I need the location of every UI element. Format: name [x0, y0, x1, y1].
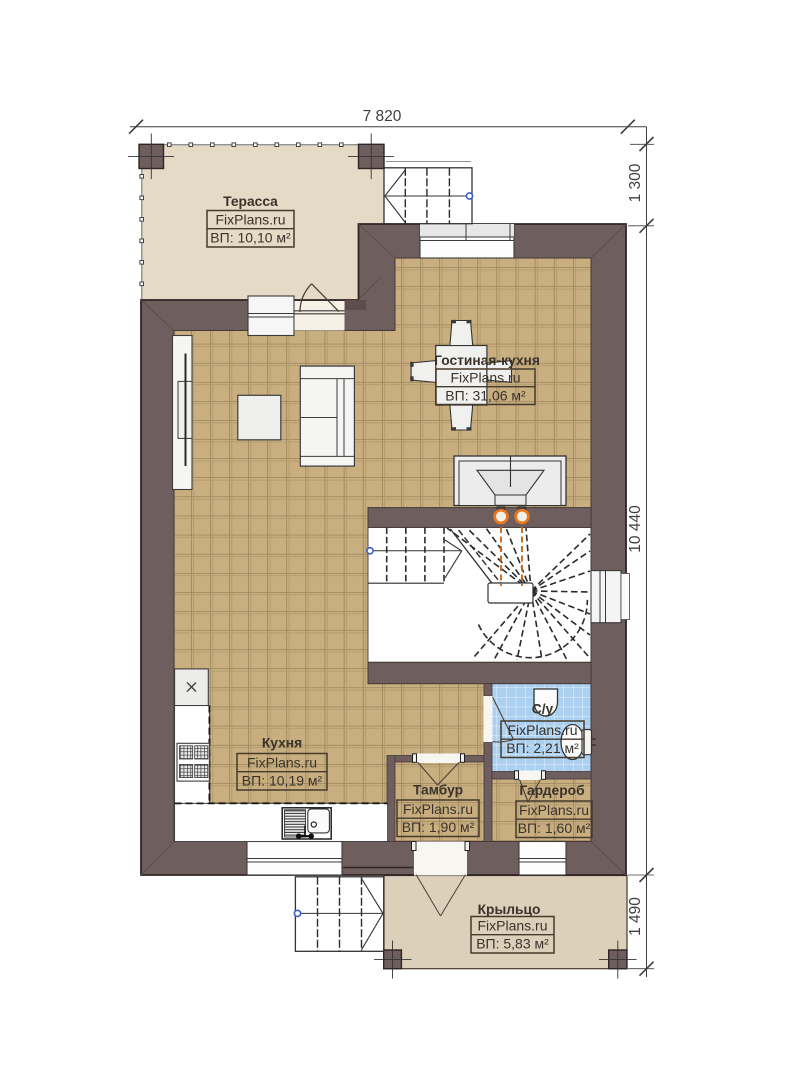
svg-text:Крыльцо: Крыльцо [478, 902, 541, 917]
svg-text:1 300: 1 300 [627, 163, 644, 202]
svg-text:FixPlans.ru: FixPlans.ru [450, 370, 520, 386]
svg-text:FixPlans.ru: FixPlans.ru [247, 755, 317, 771]
svg-text:Кухня: Кухня [262, 736, 302, 751]
svg-text:ВП: 2,21 м²: ВП: 2,21 м² [506, 740, 579, 756]
svg-text:FixPlans.ru: FixPlans.ru [519, 802, 589, 818]
svg-text:Гардероб: Гардероб [519, 783, 584, 798]
svg-text:1 490: 1 490 [627, 897, 644, 936]
svg-text:ВП: 5,83 м²: ВП: 5,83 м² [476, 936, 549, 952]
svg-text:ВП: 10,19 м²: ВП: 10,19 м² [242, 773, 323, 789]
svg-text:С/у: С/у [532, 702, 554, 717]
svg-text:ВП: 1,60 м²: ВП: 1,60 м² [518, 820, 591, 836]
svg-text:FixPlans.ru: FixPlans.ru [507, 722, 577, 738]
svg-text:ВП: 31,06 м²: ВП: 31,06 м² [445, 388, 526, 404]
svg-text:FixPlans.ru: FixPlans.ru [215, 212, 285, 228]
svg-text:7 820: 7 820 [363, 108, 402, 125]
svg-text:10 440: 10 440 [627, 505, 644, 553]
svg-text:ВП: 10,10 м²: ВП: 10,10 м² [210, 230, 291, 246]
svg-text:Гостиная-кухня: Гостиная-кухня [434, 353, 540, 368]
svg-text:ВП: 1,90 м²: ВП: 1,90 м² [402, 819, 475, 835]
svg-text:Терасса: Терасса [223, 194, 278, 209]
svg-text:Тамбур: Тамбур [413, 783, 463, 798]
svg-text:FixPlans.ru: FixPlans.ru [403, 801, 473, 817]
svg-text:FixPlans.ru: FixPlans.ru [477, 918, 547, 934]
